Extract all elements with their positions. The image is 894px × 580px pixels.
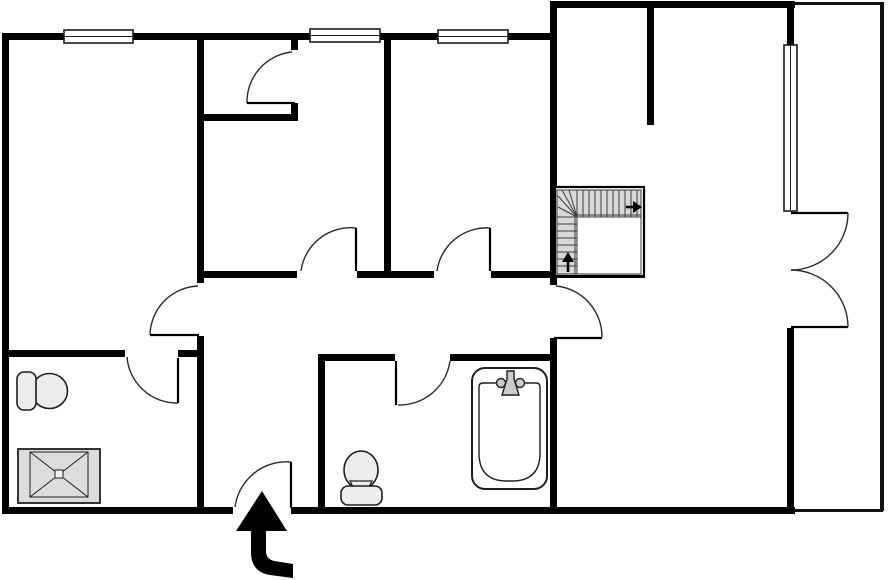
balcony-edge-top [793, 2, 883, 5]
bathtub-icon [472, 368, 547, 489]
shower-icon [18, 449, 100, 503]
wall-bath-mid-top-2 [450, 354, 557, 361]
wall-balcony-lower [787, 328, 794, 514]
toilet-icon-left-bathroom [17, 372, 68, 410]
wall-living-left-lower [550, 338, 557, 514]
wall-bedroom1-right-lower [197, 336, 204, 514]
wall-bath-left-top-1 [2, 350, 125, 357]
window-bedroom2 [310, 29, 380, 42]
toilet-icon-left-bathroom-part [17, 372, 36, 410]
toilet-icon-left-bathroom-part [32, 374, 68, 409]
wall-balcony-stub-top [787, 1, 794, 45]
wall-closet-stub-top [291, 33, 298, 50]
wall-outer-left [2, 33, 9, 514]
balcony-edge-bottom [793, 509, 883, 512]
shower-icon-part [55, 470, 63, 478]
wall-outer-bottom-right [291, 507, 795, 514]
wall-closet-stub-bottom [291, 103, 298, 121]
staircase [555, 187, 644, 276]
window-living [784, 45, 797, 211]
wall-living-stub [647, 1, 654, 125]
wall-hallway-top-1 [197, 271, 297, 278]
wall-bath-mid-top-1 [318, 354, 395, 361]
toilet-icon-mid-bathroom-part [341, 486, 382, 505]
wall-bath-left-top-2 [178, 350, 204, 357]
floor-plan-drawing [0, 0, 894, 580]
wall-hallway-top-2 [357, 271, 434, 278]
plan-background [0, 0, 894, 580]
wall-vestibule-right [318, 357, 325, 514]
wall-closet-bottom [197, 114, 298, 121]
toilet-icon-mid-bathroom [341, 451, 382, 505]
floor-plan-page [0, 0, 894, 580]
balcony-edge-right [880, 2, 884, 511]
stair-void [577, 217, 641, 274]
window-bedroom1 [64, 30, 133, 43]
wall-bedroom-divider [384, 33, 391, 278]
wall-outer-top-right [550, 1, 795, 8]
wall-bedroom1-right-upper [197, 33, 204, 283]
window-bedroom3 [438, 30, 508, 43]
